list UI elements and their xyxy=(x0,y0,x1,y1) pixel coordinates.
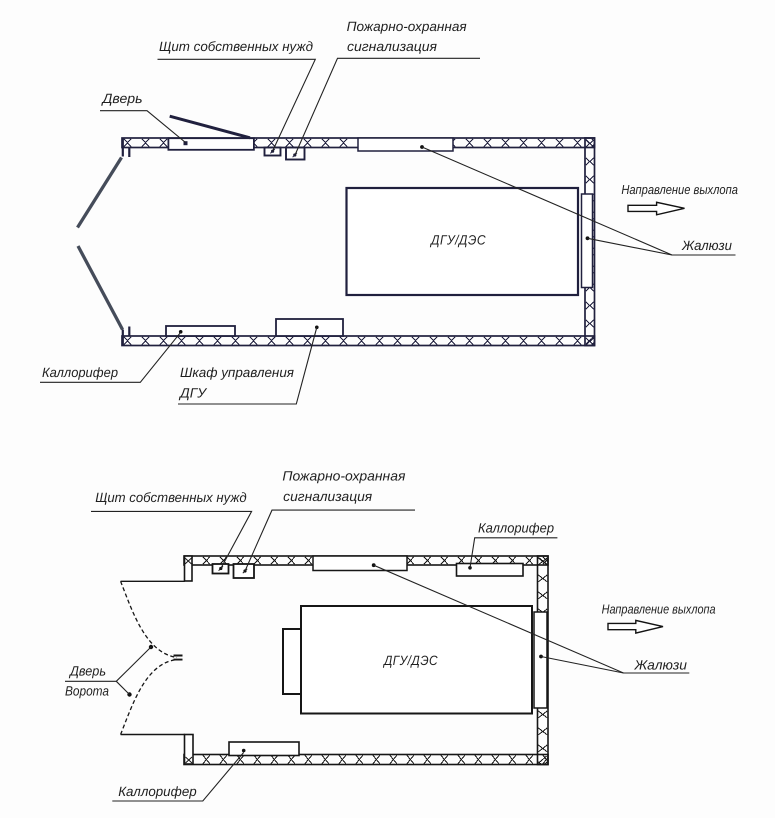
svg-text:Каллорифер: Каллорифер xyxy=(478,520,554,535)
svg-text:Ворота: Ворота xyxy=(65,684,109,699)
svg-text:сигнализация: сигнализация xyxy=(347,39,437,54)
svg-text:Щит собственных нужд: Щит собственных нужд xyxy=(95,490,247,505)
svg-text:Жалюзи: Жалюзи xyxy=(681,238,732,253)
svg-text:Дверь: Дверь xyxy=(68,664,106,679)
svg-text:ДГУ/ДЭС: ДГУ/ДЭС xyxy=(429,233,486,248)
svg-text:Щит собственных нужд: Щит собственных нужд xyxy=(159,39,314,54)
svg-text:Направление выхлопа: Направление выхлопа xyxy=(621,182,738,197)
svg-text:ДГУ: ДГУ xyxy=(178,385,207,400)
svg-text:Каллорифер: Каллорифер xyxy=(42,365,118,380)
svg-text:Пожарно-охранная: Пожарно-охранная xyxy=(282,468,405,483)
svg-text:Направление выхлопа: Направление выхлопа xyxy=(602,602,716,617)
svg-text:Каллорифер: Каллорифер xyxy=(118,784,197,799)
svg-text:Пожарно-охранная: Пожарно-охранная xyxy=(347,19,467,34)
svg-text:Дверь: Дверь xyxy=(100,91,142,106)
svg-text:Жалюзи: Жалюзи xyxy=(633,657,687,672)
svg-text:ДГУ/ДЭС: ДГУ/ДЭС xyxy=(382,653,438,668)
svg-text:сигнализация: сигнализация xyxy=(283,489,372,504)
svg-text:Шкаф управления: Шкаф управления xyxy=(180,365,294,380)
